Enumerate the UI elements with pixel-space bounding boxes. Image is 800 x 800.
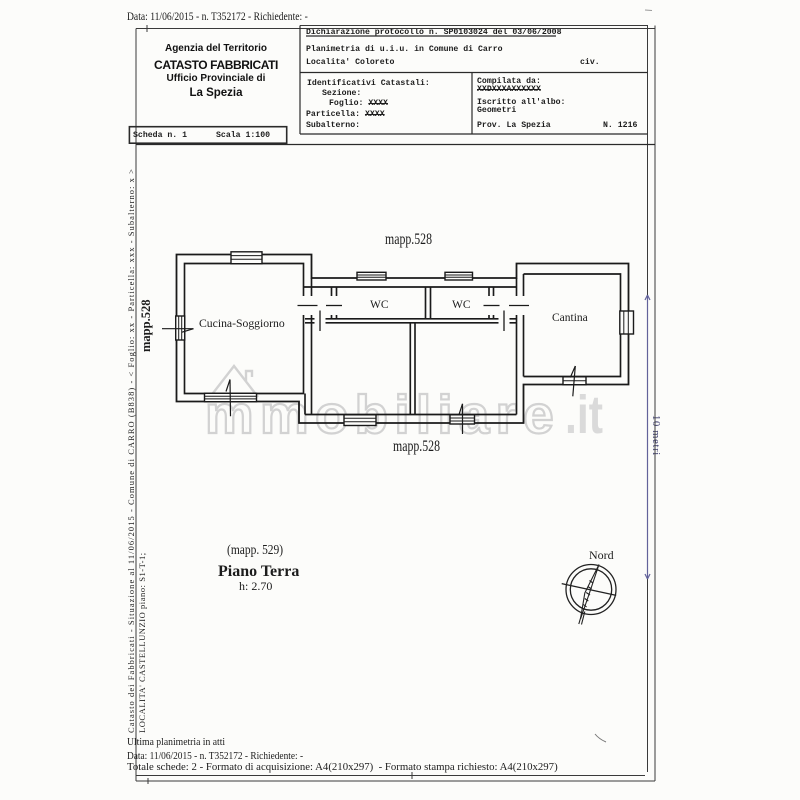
svg-text:.it: .it — [565, 385, 603, 445]
